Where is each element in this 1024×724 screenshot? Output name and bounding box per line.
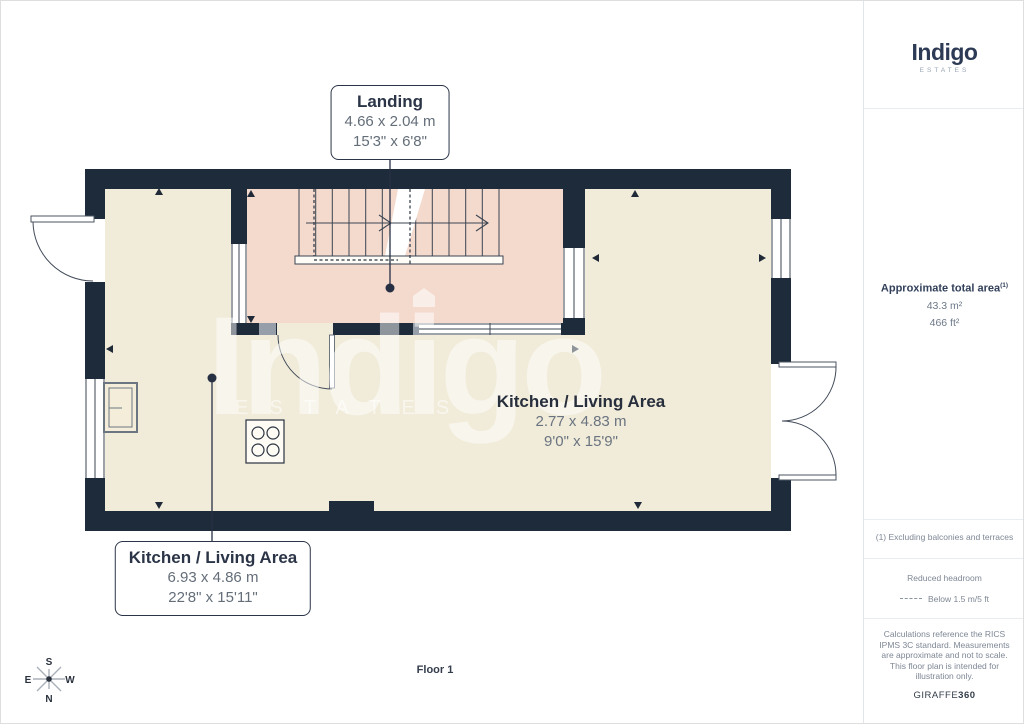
landing-name: Landing: [345, 92, 436, 112]
divider: [864, 108, 1024, 109]
total-area-title: Approximate total area(1): [864, 282, 1024, 295]
divider: [864, 618, 1024, 619]
total-area-imperial: 466 ft²: [864, 317, 1024, 329]
area-footnote: (1) Excluding balconies and terraces: [864, 532, 1024, 542]
giraffe360-brand: GIRAFFE360: [864, 690, 1024, 701]
floorplan-canvas: S E W N Indigo ESTATES Landing 4.66 x 2.…: [1, 1, 863, 724]
divider: [864, 519, 1024, 520]
total-area-footnote-ref: (1): [1000, 282, 1008, 289]
kitchen-imperial: 9'0" x 15'9": [497, 432, 665, 452]
landing-anchor-dot: [386, 284, 395, 293]
landing-callout: Landing 4.66 x 2.04 m 15'3" x 6'8": [331, 85, 450, 160]
kitchen-callout: Kitchen / Living Area 6.93 x 4.86 m 22'8…: [115, 541, 311, 616]
kitchen-metric: 2.77 x 4.83 m: [497, 412, 665, 432]
agency-logo-subtext: ESTATES: [864, 67, 1024, 74]
info-sidebar: Indigo ESTATES Approximate total area(1)…: [863, 1, 1024, 724]
reduced-headroom-title: Reduced headroom: [864, 573, 1024, 583]
total-area-block: Approximate total area(1) 43.3 m² 466 ft…: [864, 282, 1024, 329]
kitchen-callout-name: Kitchen / Living Area: [129, 548, 297, 568]
divider: [864, 558, 1024, 559]
reduced-headroom-value: Below 1.5 m/5 ft: [928, 594, 989, 604]
kitchen-room-label: Kitchen / Living Area 2.77 x 4.83 m 9'0"…: [497, 392, 665, 451]
floorplan-page: S E W N Indigo ESTATES Landing 4.66 x 2.…: [0, 0, 1024, 724]
landing-metric: 4.66 x 2.04 m: [345, 112, 436, 132]
kitchen-anchor-dot: [208, 374, 217, 383]
giraffe-brand-text: GIRAFFE: [913, 690, 958, 701]
kitchen-callout-imperial: 22'8" x 15'11": [129, 588, 297, 608]
kitchen-callout-metric: 6.93 x 4.86 m: [129, 568, 297, 588]
disclaimer-text: Calculations reference the RICS IPMS 3C …: [874, 629, 1015, 682]
giraffe-brand-360: 360: [958, 690, 975, 701]
dashed-line-sample: [900, 598, 922, 599]
landing-imperial: 15'3" x 6'8": [345, 132, 436, 152]
total-area-title-text: Approximate total area: [881, 283, 1000, 295]
kitchen-name: Kitchen / Living Area: [497, 392, 665, 412]
total-area-metric: 43.3 m²: [864, 300, 1024, 312]
reduced-headroom-legend: Below 1.5 m/5 ft: [864, 594, 1024, 604]
floor-label: Floor 1: [417, 664, 454, 676]
agency-logo-text: Indigo: [864, 39, 1024, 66]
agency-logo: Indigo ESTATES: [864, 39, 1024, 74]
